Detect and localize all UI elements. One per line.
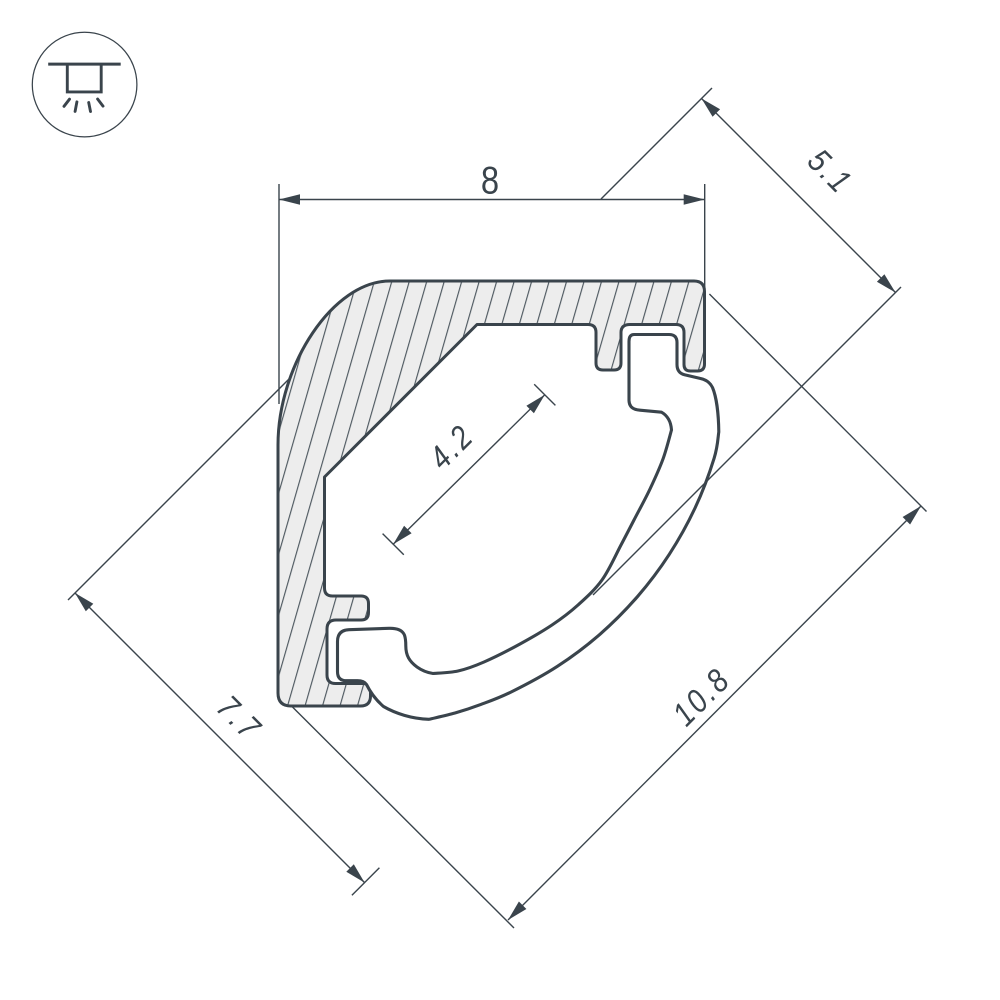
svg-text:10.8: 10.8 [666,661,738,733]
svg-text:7.7: 7.7 [209,689,268,748]
svg-text:8: 8 [481,158,499,202]
svg-text:4.2: 4.2 [422,417,481,476]
svg-text:5.1: 5.1 [800,142,859,201]
